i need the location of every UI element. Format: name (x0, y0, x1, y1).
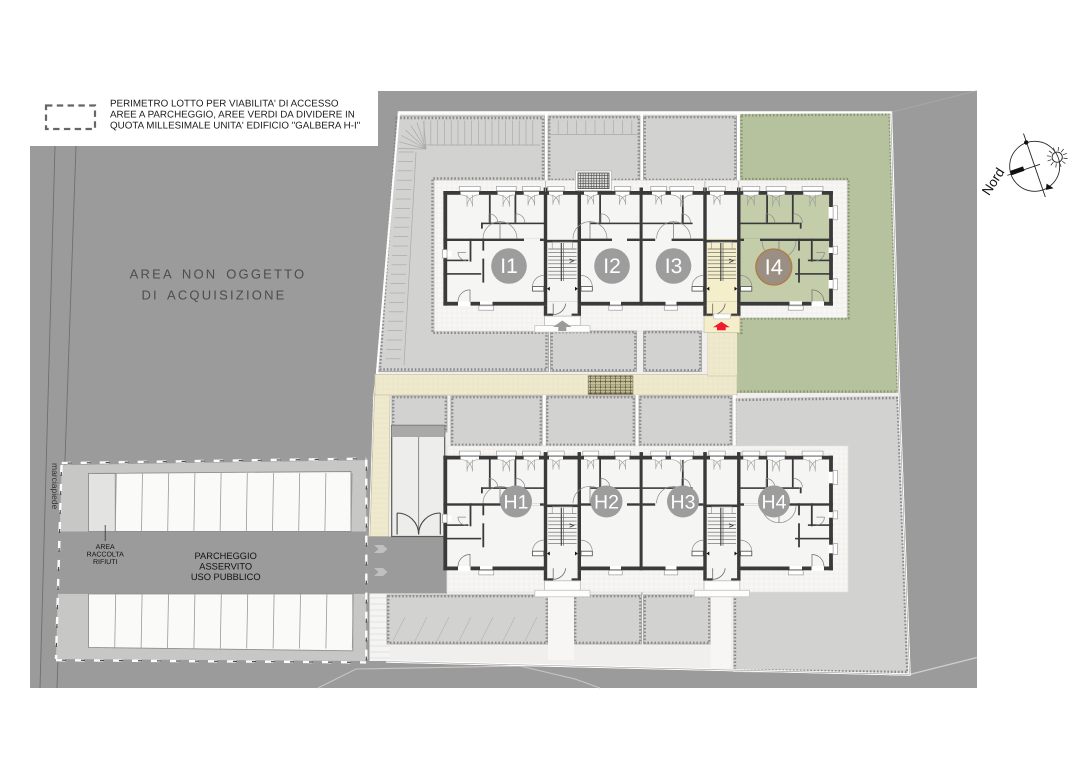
svg-text:marciapiede: marciapiede (50, 463, 60, 510)
svg-text:PERIMETRO LOTTO PER VIABILITA': PERIMETRO LOTTO PER VIABILITA' DI ACCESS… (110, 99, 339, 110)
svg-text:AREA: AREA (96, 544, 115, 551)
svg-text:H3: H3 (671, 492, 696, 514)
svg-text:RIFIUTI: RIFIUTI (93, 559, 118, 566)
svg-text:AREA NON OGGETTO: AREA NON OGGETTO (130, 267, 307, 282)
svg-text:QUOTA MILLESIMALE UNITA' EDIFI: QUOTA MILLESIMALE UNITA' EDIFICIO "GALBE… (110, 121, 361, 132)
svg-text:I4: I4 (765, 255, 783, 280)
svg-text:H4: H4 (762, 492, 787, 514)
svg-text:H2: H2 (594, 492, 619, 514)
svg-text:PARCHEGGIO: PARCHEGGIO (195, 551, 257, 561)
svg-text:I3: I3 (665, 255, 683, 278)
svg-text:AREE A PARCHEGGIO, AREE VERDI: AREE A PARCHEGGIO, AREE VERDI DA DIVIDER… (110, 110, 355, 121)
svg-text:ASSERVITO: ASSERVITO (199, 562, 252, 572)
svg-text:H1: H1 (504, 492, 529, 514)
svg-text:RACCOLTA: RACCOLTA (87, 552, 124, 559)
svg-text:I1: I1 (500, 255, 518, 278)
svg-text:USO PUBBLICO: USO PUBBLICO (191, 572, 261, 582)
svg-text:DI ACQUISIZIONE: DI ACQUISIZIONE (141, 288, 286, 303)
svg-text:I2: I2 (603, 255, 621, 278)
